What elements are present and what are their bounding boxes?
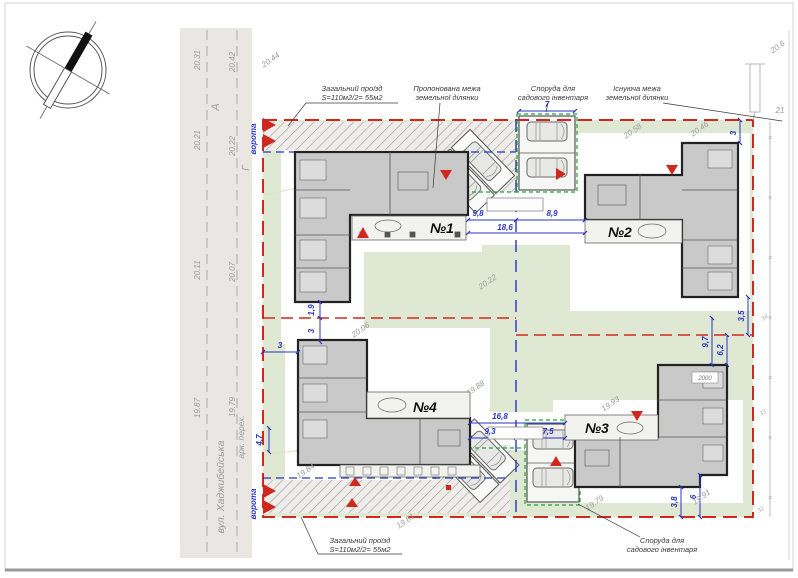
dim-3-topright: 3 xyxy=(729,130,738,135)
dim-18-6: 18,6 xyxy=(497,223,513,232)
proposed-boundary-label-1: Пропонована межа xyxy=(413,84,480,93)
fence-mark: × xyxy=(768,375,772,382)
plan-drawing: × × × × × × × xyxy=(0,0,798,578)
shed-label-bottom-1: Споруда для xyxy=(640,536,684,545)
level-mark: 20.31 xyxy=(193,50,202,71)
gate-label-bottom: ворота xyxy=(249,488,258,519)
site-plan-sheet: Схема посадки будівель юк 2юк №1 Sділянк… xyxy=(0,0,798,578)
level-mark: 20.42 xyxy=(228,51,237,73)
dim-3-8: 3,8 xyxy=(670,496,679,508)
proposed-boundary-label-2: земельної ділянки xyxy=(415,93,479,102)
dim-8-9: 8,9 xyxy=(546,209,558,218)
shed-parking-top xyxy=(519,116,575,190)
building-4-label: №4 xyxy=(413,399,437,415)
street-name: вул. Хаджибейська xyxy=(215,440,227,533)
car xyxy=(533,468,573,487)
building-1-label: №1 xyxy=(430,220,454,236)
building-3-annotation: 2000 xyxy=(697,376,712,382)
building-2-terrace xyxy=(585,220,682,243)
gate-label-top: ворота xyxy=(249,123,258,154)
shed-box-bottom xyxy=(488,427,543,439)
crossing-label: арк. перех. xyxy=(236,415,246,458)
existing-boundary-label-2: земельної ділянки xyxy=(605,93,669,102)
dim-6-2: 6,2 xyxy=(716,344,725,356)
dim-9-7: 9,7 xyxy=(701,336,710,348)
level-mark: 20.11 xyxy=(193,260,202,280)
driveway-label-top-1: Загальний проїзд xyxy=(322,84,383,93)
building-3-terrace xyxy=(565,415,658,440)
level-mark: 19.79 xyxy=(228,396,237,417)
shed-label-bottom-2: садового інвентаря xyxy=(627,545,697,554)
road-letter-a: А xyxy=(210,103,222,111)
dim-1-9: 1,9 xyxy=(307,304,316,316)
dim-7-5: 7,5 xyxy=(542,427,554,436)
dim-3-left: 3 xyxy=(278,341,283,350)
driveway-label-bottom-1: Загальний проїзд xyxy=(330,536,391,545)
dim-16-8: 16,8 xyxy=(492,412,508,421)
level-mark: 20.21 xyxy=(193,130,202,151)
dim-9-3: 9,3 xyxy=(484,427,496,436)
level-mark: 21 xyxy=(775,106,785,115)
car xyxy=(527,122,567,141)
level-mark: 20.22 xyxy=(228,135,237,157)
fence-mark: × xyxy=(768,495,772,502)
dim-3-5: 3,5 xyxy=(737,310,746,322)
building-2-label: №2 xyxy=(608,224,632,240)
fence-mark: × xyxy=(768,135,772,142)
level-mark: 20.07 xyxy=(228,261,237,283)
dim-4-7-road: 4,7 xyxy=(255,434,264,447)
driveway-label-top-2: S=110м2/2= 55м2 xyxy=(321,93,383,102)
building-4-porch xyxy=(340,465,480,477)
level-mark: 19.87 xyxy=(193,397,202,418)
shed-label-top-2: садового інвентаря xyxy=(518,93,588,102)
fence-mark: × xyxy=(768,435,772,442)
existing-boundary-label-1: Існуюча межа xyxy=(613,84,661,93)
fence-mark: × xyxy=(768,255,772,262)
dim-3-mid: 3 xyxy=(307,328,316,333)
shed-label-top-1: Споруда для xyxy=(531,84,575,93)
dim-9-8: 9,8 xyxy=(472,209,484,218)
flag-marker xyxy=(446,485,451,490)
fence-mark: × xyxy=(768,195,772,202)
shed-box-top xyxy=(487,198,543,211)
driveway-label-bottom-2: S=110м2/2= 55м2 xyxy=(329,545,391,554)
building-3-label: №3 xyxy=(585,420,609,436)
